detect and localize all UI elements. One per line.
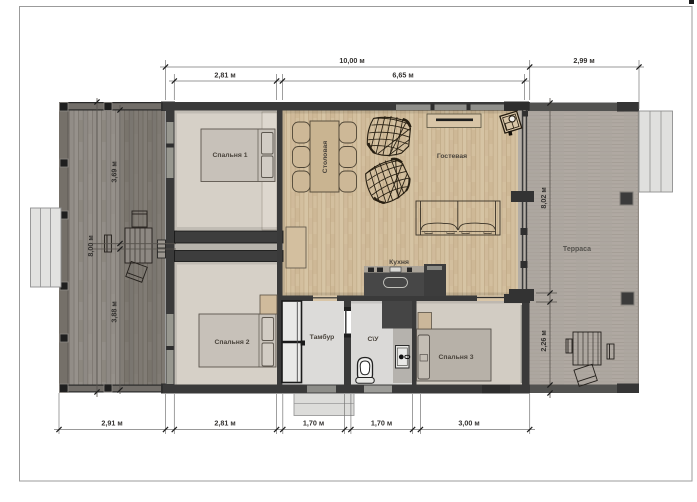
svg-text:2,81 м: 2,81 м [214, 419, 235, 428]
svg-text:2,99 м: 2,99 м [573, 56, 594, 65]
svg-text:1,70 м: 1,70 м [303, 419, 324, 428]
svg-text:Тамбур: Тамбур [310, 333, 335, 341]
svg-text:2,81 м: 2,81 м [214, 71, 235, 80]
svg-text:Терраса: Терраса [563, 246, 591, 253]
svg-text:2,26 м: 2,26 м [539, 330, 548, 351]
svg-text:Спальня 3: Спальня 3 [438, 354, 473, 361]
svg-text:Кухня: Кухня [389, 259, 409, 266]
svg-text:3,00 м: 3,00 м [458, 419, 479, 428]
svg-text:С\У: С\У [367, 336, 379, 343]
svg-text:8,00 м: 8,00 м [86, 235, 95, 256]
svg-text:Спальня 1: Спальня 1 [212, 152, 247, 159]
svg-text:3,69 м: 3,69 м [110, 161, 119, 182]
svg-text:3,88 м: 3,88 м [110, 301, 119, 322]
svg-text:Спальня 2: Спальня 2 [214, 339, 249, 346]
svg-text:2,91 м: 2,91 м [101, 419, 122, 428]
svg-text:10,00 м: 10,00 м [339, 56, 364, 65]
svg-text:1,70 м: 1,70 м [371, 419, 392, 428]
svg-text:6,65 м: 6,65 м [392, 71, 413, 80]
svg-text:Столовая: Столовая [322, 141, 329, 173]
svg-text:Гостевая: Гостевая [437, 153, 467, 160]
svg-text:8,02 м: 8,02 м [539, 187, 548, 208]
